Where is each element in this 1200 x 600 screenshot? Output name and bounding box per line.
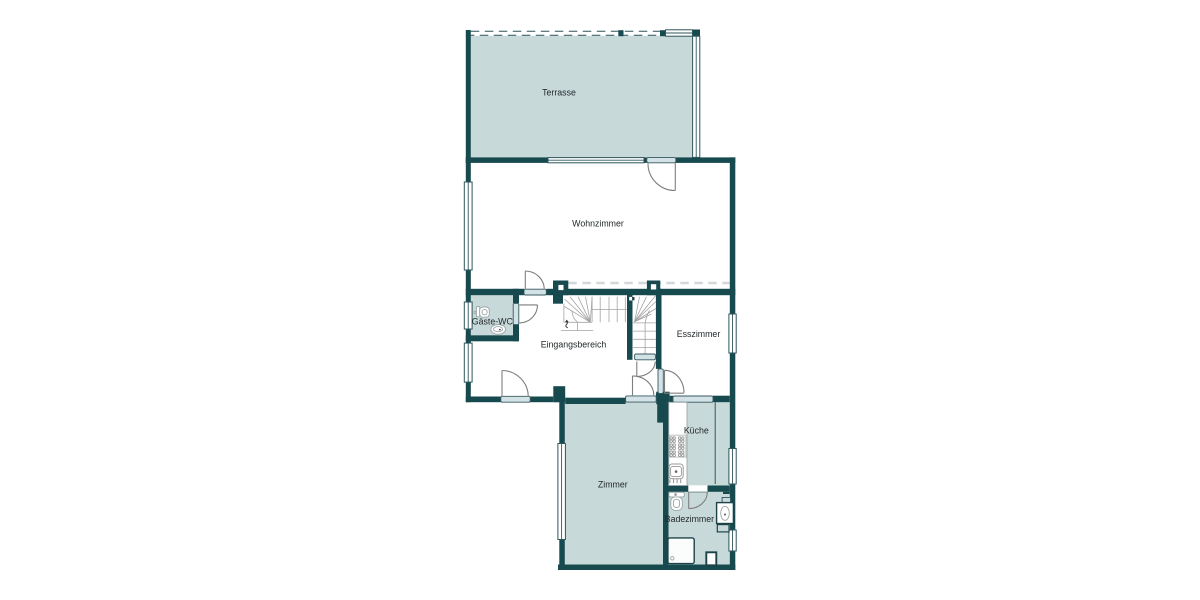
svg-text:Esszimmer: Esszimmer xyxy=(677,329,721,339)
svg-text:Eingangsbereich: Eingangsbereich xyxy=(541,339,607,349)
svg-text:Wohnzimmer: Wohnzimmer xyxy=(572,219,624,229)
svg-text:Terrasse: Terrasse xyxy=(542,87,576,97)
svg-text:Küche: Küche xyxy=(684,425,709,435)
svg-text:Gäste-WC: Gäste-WC xyxy=(472,316,514,326)
svg-text:Zimmer: Zimmer xyxy=(598,480,628,490)
svg-text:Badezimmer: Badezimmer xyxy=(665,514,714,524)
